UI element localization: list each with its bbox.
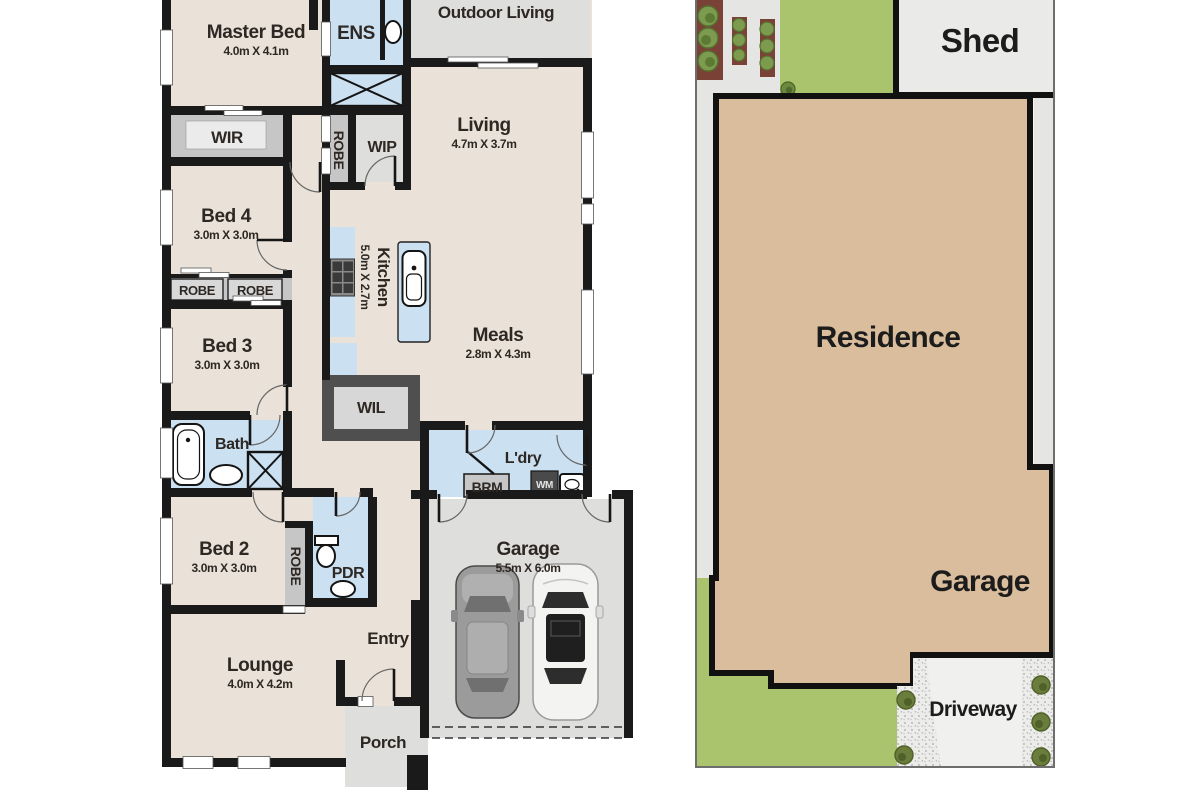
entry-label: Entry [367,629,409,648]
stove-icon [331,259,355,296]
right-path [1034,96,1053,464]
bed4-dims: 3.0m X 3.0m [194,228,259,242]
bush-icon [698,28,718,48]
driveway-label: Driveway [929,698,1017,721]
kitchen-dims: 5.0m X 2.7m [358,245,372,310]
living-dims: 4.7m X 3.7m [452,137,517,151]
brm-label: BRM [472,479,503,495]
bed3-label: Bed 3 [202,336,252,357]
bush-icon [733,34,746,47]
robe-bed2-label: ROBE [288,547,304,586]
kitchen-label-group: Kitchen 5.0m X 2.7m [358,245,393,310]
wm-label: WM [536,480,553,491]
bed4-label: Bed 4 [201,206,252,227]
robe-bed3-label: ROBE [237,283,274,298]
wir-label: WIR [211,128,243,147]
bed2-label: Bed 2 [199,539,249,560]
island-sink-icon [403,251,426,306]
residence-label: Residence [816,321,961,354]
kitchen-label: Kitchen [374,247,393,307]
outdoor-living-label: Outdoor Living [438,3,554,22]
bush-icon [1032,713,1050,731]
laundry-label: L'dry [505,450,542,467]
wil-label: WIL [357,400,386,417]
site-garage-label: Garage [930,565,1030,598]
master-bed-label: Master Bed [207,22,305,43]
site-plan: Shed Residence Garage Driveway [695,0,1055,768]
bush-icon [698,51,718,71]
bush-icon [1032,676,1050,694]
garage-label: Garage [496,539,559,560]
wip-label: WIP [367,139,397,156]
bush-icon [698,6,718,26]
vanity-icon [210,465,242,485]
floorplan-canvas: Outdoor Living Master Bed 4.0m X 4.1m EN… [0,0,1200,800]
bush-icon [733,49,745,61]
meals-label: Meals [473,325,524,346]
car-white-icon [528,564,603,720]
bed3-dims: 3.0m X 3.0m [195,358,260,372]
bush-icon [760,56,774,70]
bath-label: Bath [215,436,249,453]
shed-label: Shed [941,22,1019,59]
bush-icon [760,22,774,36]
floorplan-page: Outdoor Living Master Bed 4.0m X 4.1m EN… [0,0,1200,800]
bush-icon [895,746,913,764]
porch-label: Porch [360,733,406,752]
bush-icon [1032,748,1050,766]
bush-icon [897,691,915,709]
lawn-top [780,0,893,96]
living-label: Living [457,115,511,136]
robe-bed4-label: ROBE [179,283,216,298]
lounge-label: Lounge [227,655,293,676]
bush-icon [760,39,774,53]
ens-label: ENS [337,23,375,44]
bush-icon [733,19,746,32]
car-grey-icon [451,566,524,718]
master-bed-dims: 4.0m X 4.1m [224,44,289,58]
pdr-vanity-icon [331,581,355,597]
garage-dims: 5.5m X 6.0m [496,561,561,575]
toilet-icon [385,21,401,43]
bed2-dims: 3.0m X 3.0m [192,561,257,575]
robe-hall-label: ROBE [331,131,347,170]
bathtub-icon [173,424,204,485]
pdr-label: PDR [332,565,365,582]
meals-dims: 2.8m X 4.3m [466,347,531,361]
floor-plan: Outdoor Living Master Bed 4.0m X 4.1m EN… [161,0,634,790]
kitchen-fridge [330,343,357,375]
lounge-dims: 4.0m X 4.2m [228,677,293,691]
